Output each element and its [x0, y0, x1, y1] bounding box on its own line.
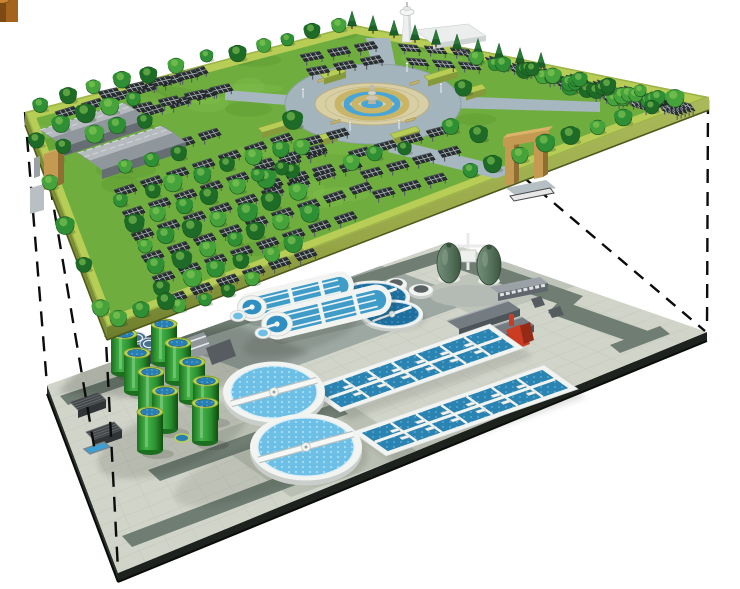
storage-silo [0, 0, 18, 22]
tree [251, 169, 266, 182]
digester-gallery [460, 250, 476, 262]
tree [200, 50, 215, 63]
tree [280, 33, 295, 46]
diagram-canvas [0, 0, 740, 589]
ground-basin [175, 434, 189, 442]
illustration-underground-wwtp-under-solar-park [0, 0, 740, 589]
tree [198, 293, 213, 306]
digester-egg [437, 242, 461, 283]
digester-egg [477, 244, 501, 285]
